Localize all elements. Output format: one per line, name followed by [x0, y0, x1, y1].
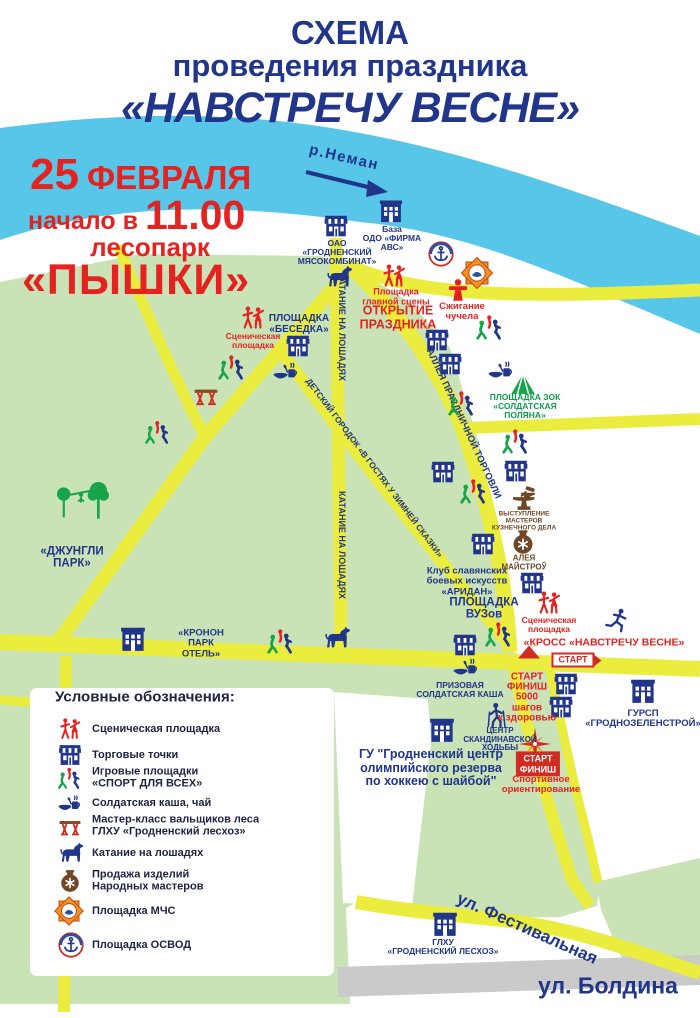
poster-title-line1: СХЕМА — [0, 14, 700, 52]
osvod-icon — [58, 932, 85, 959]
food-icon — [268, 359, 302, 385]
food-icon — [54, 792, 84, 816]
label-gursp: ГУРСП «ГРОДНОЗЕЛЕНСТРОЙ» — [585, 709, 700, 730]
building-icon — [627, 676, 659, 706]
legend-item-label: Солдатская каша, чай — [92, 797, 211, 809]
label-orienteering: Спортивное ориентирование — [502, 775, 580, 796]
label-effigy: Сжигание чучела — [439, 302, 485, 323]
legend-item-label: Катание на лошадях — [92, 847, 203, 859]
logger-table-icon — [190, 382, 222, 408]
label-masters-alley: АЛЕЯ МАЙСТРОЎ — [501, 554, 546, 571]
legend-item-label: Продажа изделий Народных мастеров — [92, 869, 203, 894]
label-base-abc: База ОДО «ФИРМА АВС» — [363, 225, 421, 253]
building-icon — [429, 909, 461, 939]
poster-title-line2: проведения праздника — [0, 48, 700, 84]
sport-ground-icon — [481, 619, 515, 649]
label-5000-steps: СТАРТ ФИНИШ 5000 шагов к здоровью — [498, 673, 556, 724]
sport-ground-icon — [55, 765, 83, 791]
runner-icon — [603, 607, 633, 635]
stage-icon — [534, 590, 564, 617]
legend-item-label: Площадка ОСВОД — [92, 939, 191, 951]
legend-item-label: Площадка МЧС — [92, 905, 176, 917]
road-label-horse-2: КАТАНИЕ НА ЛОШАДЯХ — [336, 491, 346, 599]
label-blacksmith: ВЫСТУПЛЕНИЕ МАСТЕРОВ КУЗНЕЧНОГО ДЕЛА — [492, 510, 556, 531]
sport-ground-icon — [214, 352, 248, 382]
start-marker-icon — [518, 646, 540, 659]
label-stage-area-2: Сценическая площадка — [522, 616, 577, 634]
label-jungle-park: «ДЖУНГЛИ ПАРК» — [40, 546, 103, 571]
legend-item-label: Мастер-класс вальщиков леса ГЛХУ «Гродне… — [92, 814, 259, 839]
sport-ground-icon — [141, 418, 173, 446]
sport-ground-icon — [456, 476, 490, 506]
shop-icon — [57, 743, 84, 768]
mchs-icon — [53, 895, 85, 927]
legend-heading: Условные обозначения: — [55, 690, 235, 707]
label-leshoz: ГЛХУ «ГРОДНЕНСКИЙ ЛЕСХОЗ» — [387, 938, 498, 956]
park-name: «ПЫШКИ» — [22, 256, 250, 305]
label-vuz: ПЛОЩАДКА ВУЗов — [449, 597, 518, 622]
horse-icon — [322, 263, 358, 291]
food-icon — [448, 655, 482, 681]
shop-icon — [429, 459, 457, 485]
sport-ground-icon — [263, 626, 297, 656]
label-cross-run: «КРОСС «НАВСТРЕЧУ ВЕСНЕ» — [524, 637, 685, 648]
label-prize-kasha: ПРИЗОВАЯ СОЛДАТСКАЯ КАША — [416, 681, 503, 699]
sport-ground-icon — [444, 388, 478, 418]
label-stage-area-1: Сценическая площадка — [226, 332, 281, 350]
crafts-pot-icon — [58, 869, 83, 894]
shop-icon — [502, 458, 530, 484]
start-arrow-icon — [593, 653, 602, 667]
legend-item-label: Игровые площадки «СПОРТ ДЛЯ ВСЕХ» — [92, 766, 202, 791]
start-sign: СТАРТ — [551, 653, 594, 668]
building-icon — [117, 624, 149, 654]
label-kronon: «КРОНОН ПАРК ОТЕЛЬ» — [178, 629, 224, 660]
label-olympic-center: ГУ "Гродненский центр олимпийского резер… — [359, 748, 503, 789]
shop-icon — [284, 333, 312, 359]
horse-icon — [56, 840, 88, 866]
sport-ground-icon — [498, 426, 532, 456]
shop-icon — [322, 213, 350, 239]
poster-title-line3: «НАВСТРЕЧУ ВЕСНЕ» — [0, 84, 700, 133]
building-icon — [426, 715, 458, 745]
logger-table-icon — [56, 814, 84, 838]
label-soldier-glade: ПЛОЩАДКА ЗОК «СОЛДАТСКАЯ ПОЛЯНА» — [490, 393, 561, 421]
stage-icon — [57, 717, 83, 742]
stage-icon — [238, 305, 268, 332]
label-opening: ОТКРЫТИЕ ПРАЗДНИКА — [360, 305, 437, 332]
road-label-boldina: ул. Болдина — [538, 974, 678, 999]
building-icon — [376, 197, 406, 225]
shop-icon — [469, 531, 497, 557]
shop-icon — [436, 351, 464, 377]
legend-item-label: Торговые точки — [92, 749, 178, 761]
label-aridan: Клуб славянских боевых искусств «АРИДАН» — [427, 567, 508, 598]
horse-icon — [320, 624, 356, 652]
crafts-pot-icon — [510, 529, 537, 556]
trees-zipline-icon — [53, 479, 117, 529]
event-map-poster: СХЕМА проведения праздника «НАВСТРЕЧУ ВЕ… — [0, 0, 700, 1018]
osvod-icon — [428, 241, 455, 268]
legend-item-label: Сценическая площадка — [92, 723, 220, 735]
